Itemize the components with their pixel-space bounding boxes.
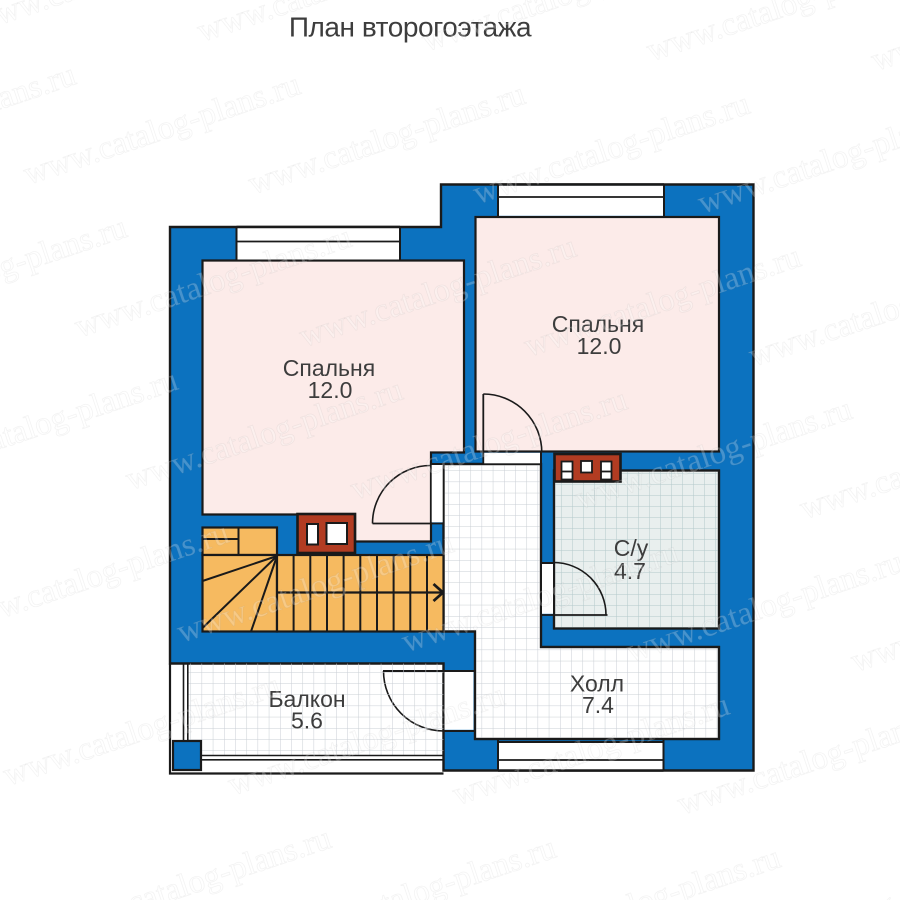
svg-text:5.6: 5.6 bbox=[291, 708, 323, 734]
svg-text:7.4: 7.4 bbox=[582, 692, 614, 718]
